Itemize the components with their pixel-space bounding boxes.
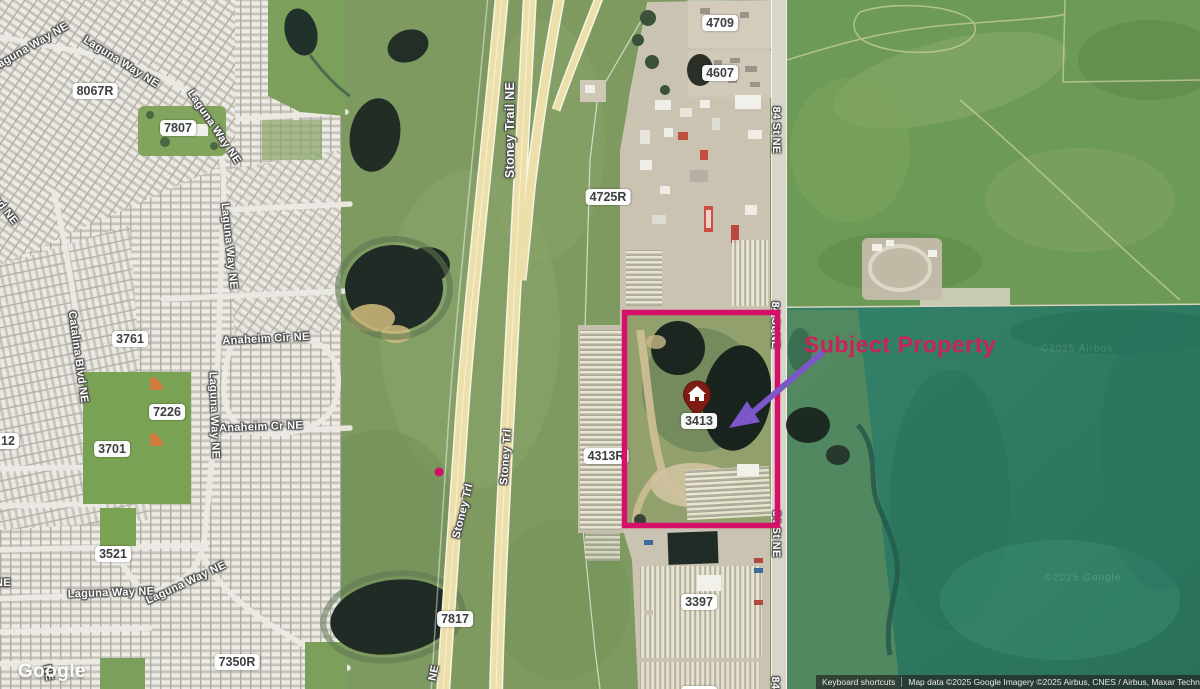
farm-fields	[786, 0, 1200, 689]
attribution-bar: Keyboard shortcuts Map data ©2025 Google…	[816, 675, 1200, 689]
residential-area	[0, 0, 350, 689]
map-attribution-text: Map data ©2025 Google Imagery ©2025 Airb…	[901, 677, 1200, 687]
keyboard-shortcuts-button[interactable]: Keyboard shortcuts	[816, 677, 901, 687]
satellite-imagery	[0, 0, 1200, 689]
subject-property-parcel	[624, 314, 778, 526]
google-logo[interactable]: Google	[18, 661, 86, 683]
map-canvas[interactable]: ©2025 Airbus©2025 Google Laguna Way NELa…	[0, 0, 1200, 689]
